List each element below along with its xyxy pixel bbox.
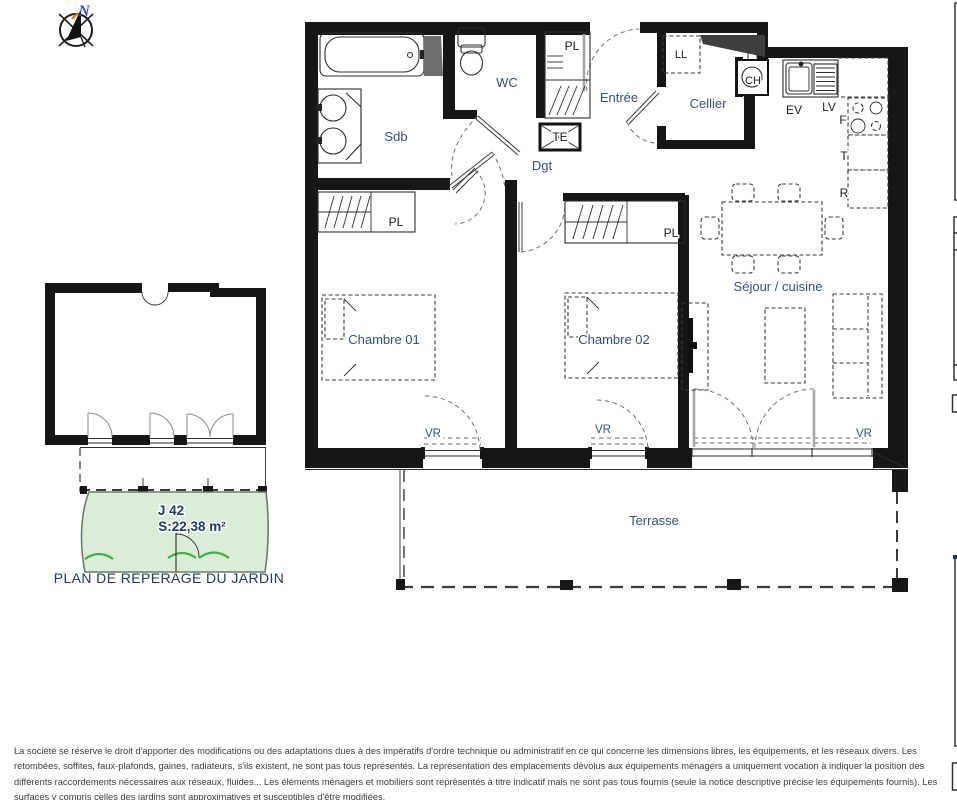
vr-label-3: VR xyxy=(856,428,872,440)
room-label-entree: Entrée xyxy=(600,90,638,105)
closet-chambre1: PL xyxy=(318,192,415,232)
garden-doors xyxy=(88,413,233,443)
garden-plan: J 42 S:22,38 m² PLAN DE REPERAGE DU JARD… xyxy=(45,283,284,586)
code-label-ch: CH xyxy=(745,75,761,87)
code-label-pl-entry: PL xyxy=(565,39,580,53)
garden-id-label: J 42 xyxy=(158,503,184,518)
code-label-f: F xyxy=(839,113,846,127)
code-label-ll: LL xyxy=(675,49,687,61)
floor-plan-page: N xyxy=(0,0,957,800)
room-label-cellier: Cellier xyxy=(690,96,728,111)
closet-chambre2: PL xyxy=(565,201,685,243)
room-label-sdb: Sdb xyxy=(384,129,407,144)
kitchen-fixtures: EV LV F T R xyxy=(783,58,888,208)
vr-label-1: VR xyxy=(425,428,441,440)
garden-area: J 42 S:22,38 m² xyxy=(82,492,269,572)
soffit xyxy=(700,35,765,57)
chambre2-door xyxy=(519,202,565,252)
garden-surface-label: S:22,38 m² xyxy=(158,519,226,534)
sofa-icon xyxy=(833,294,882,398)
sdb-door xyxy=(450,152,505,188)
shower-screen xyxy=(424,36,443,76)
main-plan-labels: Sdb WC Entrée Dgt Cellier Chambre 01 Cha… xyxy=(348,75,872,528)
room-label-chambre1: Chambre 01 xyxy=(348,332,420,347)
electrical-panel: TE xyxy=(540,124,580,150)
coffee-table-icon xyxy=(765,308,805,383)
double-washbasin-icon xyxy=(316,89,361,163)
code-label-pl-ch2: PL xyxy=(664,226,679,240)
room-label-dgt: Dgt xyxy=(532,158,553,173)
room-label-sejour: Séjour / cuisine xyxy=(734,279,823,294)
room-label-wc: WC xyxy=(496,75,518,90)
code-label-ev: EV xyxy=(786,103,802,117)
disclaimer-text: La société se réserve le droit d'apporte… xyxy=(14,744,950,800)
plan-drawing: N xyxy=(0,0,957,800)
code-label-lv: LV xyxy=(822,100,836,114)
room-label-chambre2: Chambre 02 xyxy=(578,332,650,347)
code-label-te: TE xyxy=(552,130,567,144)
toilet-icon xyxy=(458,28,485,75)
garden-terrace-strip xyxy=(80,448,267,496)
dining-table-icon xyxy=(701,184,843,273)
cooktop-icon xyxy=(848,98,888,135)
vr-label-2: VR xyxy=(595,424,611,436)
right-edge-fragments xyxy=(953,3,957,790)
north-label: N xyxy=(77,3,91,20)
wc-door xyxy=(452,116,520,176)
entrance-door xyxy=(584,29,639,91)
compass: N xyxy=(59,3,93,47)
code-label-pl-ch1: PL xyxy=(389,215,404,229)
code-label-r: R xyxy=(840,186,849,200)
bay-window-sejour xyxy=(692,389,873,457)
room-label-terrasse: Terrasse xyxy=(629,513,679,528)
chambre1-door xyxy=(453,168,485,224)
sink-unit-icon xyxy=(783,60,838,97)
garden-caption: PLAN DE REPERAGE DU JARDIN xyxy=(54,570,285,586)
code-label-t: T xyxy=(840,149,848,163)
bathtub-icon xyxy=(320,33,427,76)
